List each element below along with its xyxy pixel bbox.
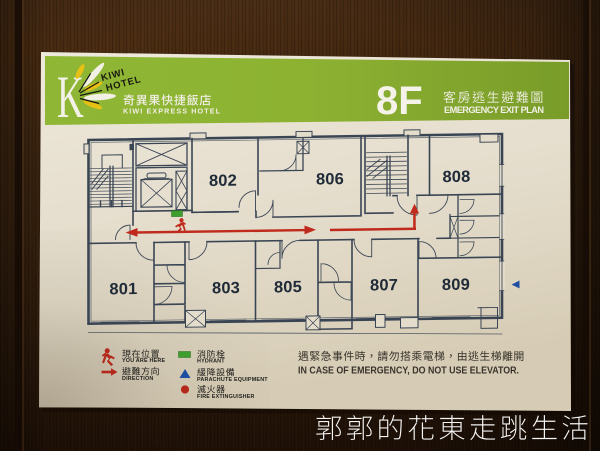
svg-text:FIRE EXTINGUISHER: FIRE EXTINGUISHER [197, 394, 255, 400]
svg-text:KIWI EXPRESS HOTEL: KIWI EXPRESS HOTEL [123, 107, 221, 116]
svg-text:809: 809 [442, 276, 470, 294]
svg-text:DIRECTION: DIRECTION [122, 376, 153, 382]
svg-text:YOU ARE HERE: YOU ARE HERE [122, 358, 165, 364]
svg-text:8F: 8F [376, 79, 423, 123]
svg-text:807: 807 [370, 276, 398, 294]
svg-text:PARACHUTE EQUIPMENT: PARACHUTE EQUIPMENT [197, 377, 268, 383]
svg-text:806: 806 [316, 170, 344, 188]
svg-text:803: 803 [212, 279, 240, 297]
svg-text:805: 805 [274, 278, 302, 296]
svg-text:808: 808 [442, 168, 470, 186]
svg-text:802: 802 [209, 172, 237, 190]
svg-text:IN CASE OF EMERGENCY, DO NOT U: IN CASE OF EMERGENCY, DO NOT USE ELEVATO… [298, 366, 519, 377]
svg-text:EMERGENCY EXIT PLAN: EMERGENCY EXIT PLAN [444, 105, 544, 115]
svg-text:HYDRANT: HYDRANT [197, 359, 225, 365]
svg-text:801: 801 [109, 280, 137, 298]
